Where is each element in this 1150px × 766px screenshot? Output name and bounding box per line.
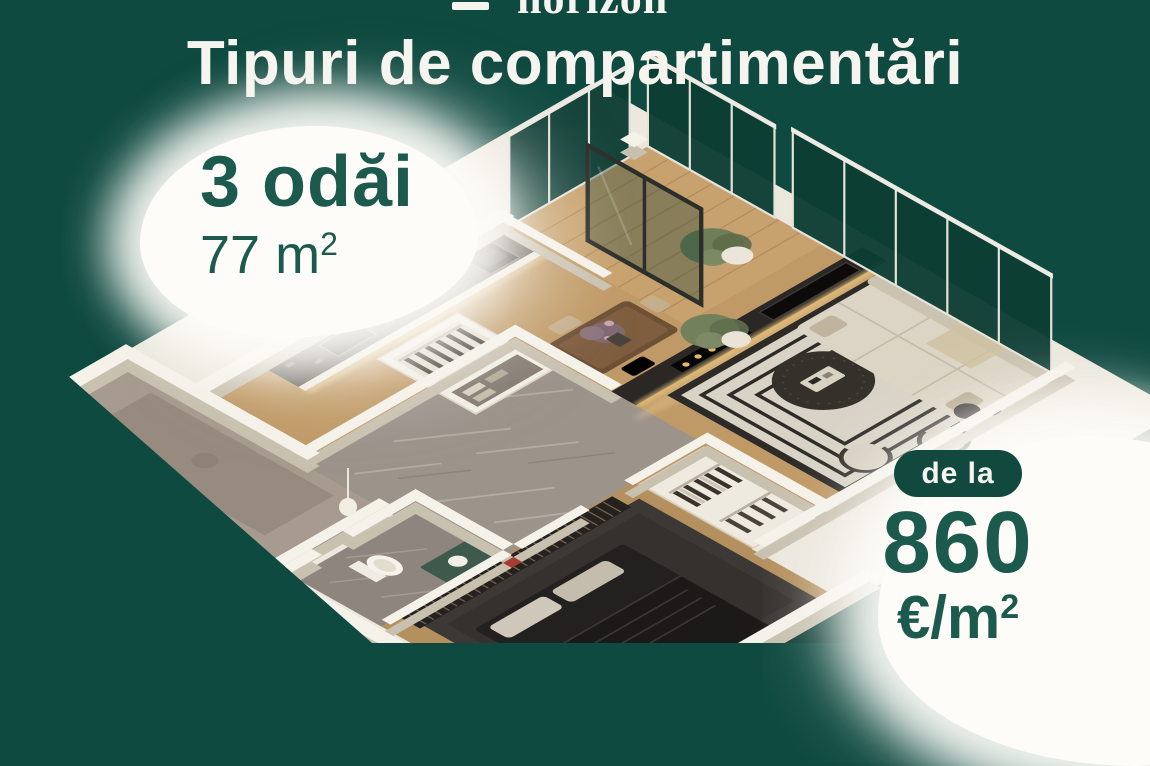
unit-area-value: 77 m <box>200 225 320 285</box>
price-badge: de la <box>894 450 1022 497</box>
unit-rooms-label: 3 odăi <box>200 146 414 218</box>
logo-text: horizon <box>517 0 668 21</box>
price-unit: €/m2 <box>858 588 1058 648</box>
page-title: Tipuri de compartimentări <box>0 28 1150 99</box>
price-unit-value: €/m <box>897 584 1000 651</box>
unit-info-card: 3 odăi 77 m2 <box>200 146 414 282</box>
unit-area-label: 77 m2 <box>200 228 414 282</box>
logo-mark-icon <box>452 2 489 10</box>
price-unit-sup: 2 <box>1000 588 1019 626</box>
price-card: de la 860 €/m2 <box>858 450 1058 648</box>
unit-area-sup: 2 <box>320 226 338 262</box>
promo-page: { "theme": { "bg_green": "#0f4a40", "tex… <box>0 0 1150 643</box>
price-amount: 860 <box>858 499 1058 586</box>
